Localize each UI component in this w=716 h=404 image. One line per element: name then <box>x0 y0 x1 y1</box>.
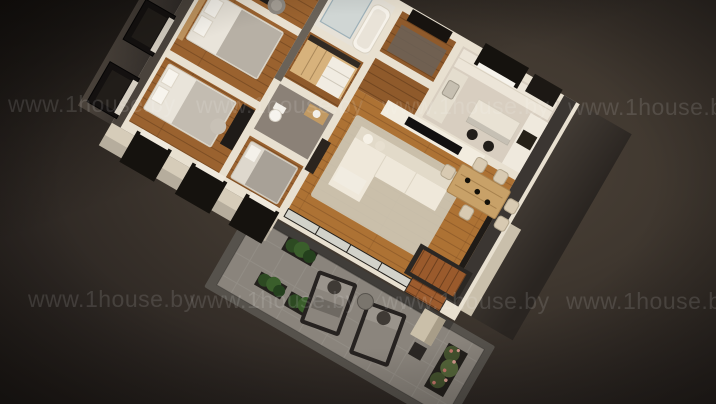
floorplan-3d-render: www.1house.by www.1house.by www.1house.b… <box>0 0 716 404</box>
vignette <box>0 0 716 404</box>
render-canvas <box>0 0 716 404</box>
